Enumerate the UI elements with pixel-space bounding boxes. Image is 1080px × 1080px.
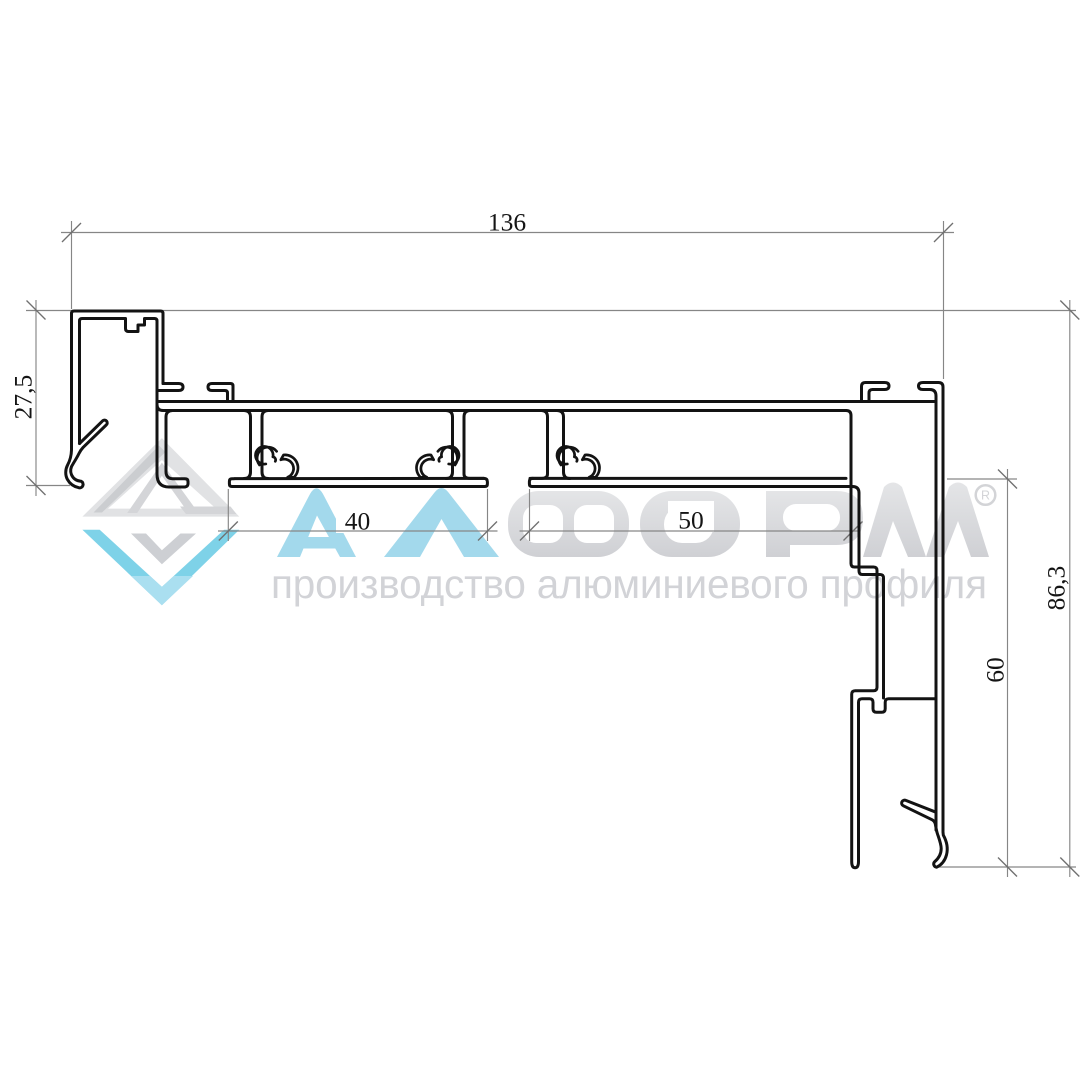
svg-text:R: R bbox=[981, 489, 990, 503]
svg-text:86,3: 86,3 bbox=[1042, 566, 1071, 611]
svg-text:60: 60 bbox=[981, 657, 1010, 683]
svg-text:производство алюминиевого проф: производство алюминиевого профиля bbox=[271, 561, 987, 607]
svg-text:27,5: 27,5 bbox=[9, 375, 38, 420]
svg-text:50: 50 bbox=[678, 506, 704, 535]
svg-text:40: 40 bbox=[345, 507, 371, 536]
svg-text:136: 136 bbox=[488, 208, 526, 237]
